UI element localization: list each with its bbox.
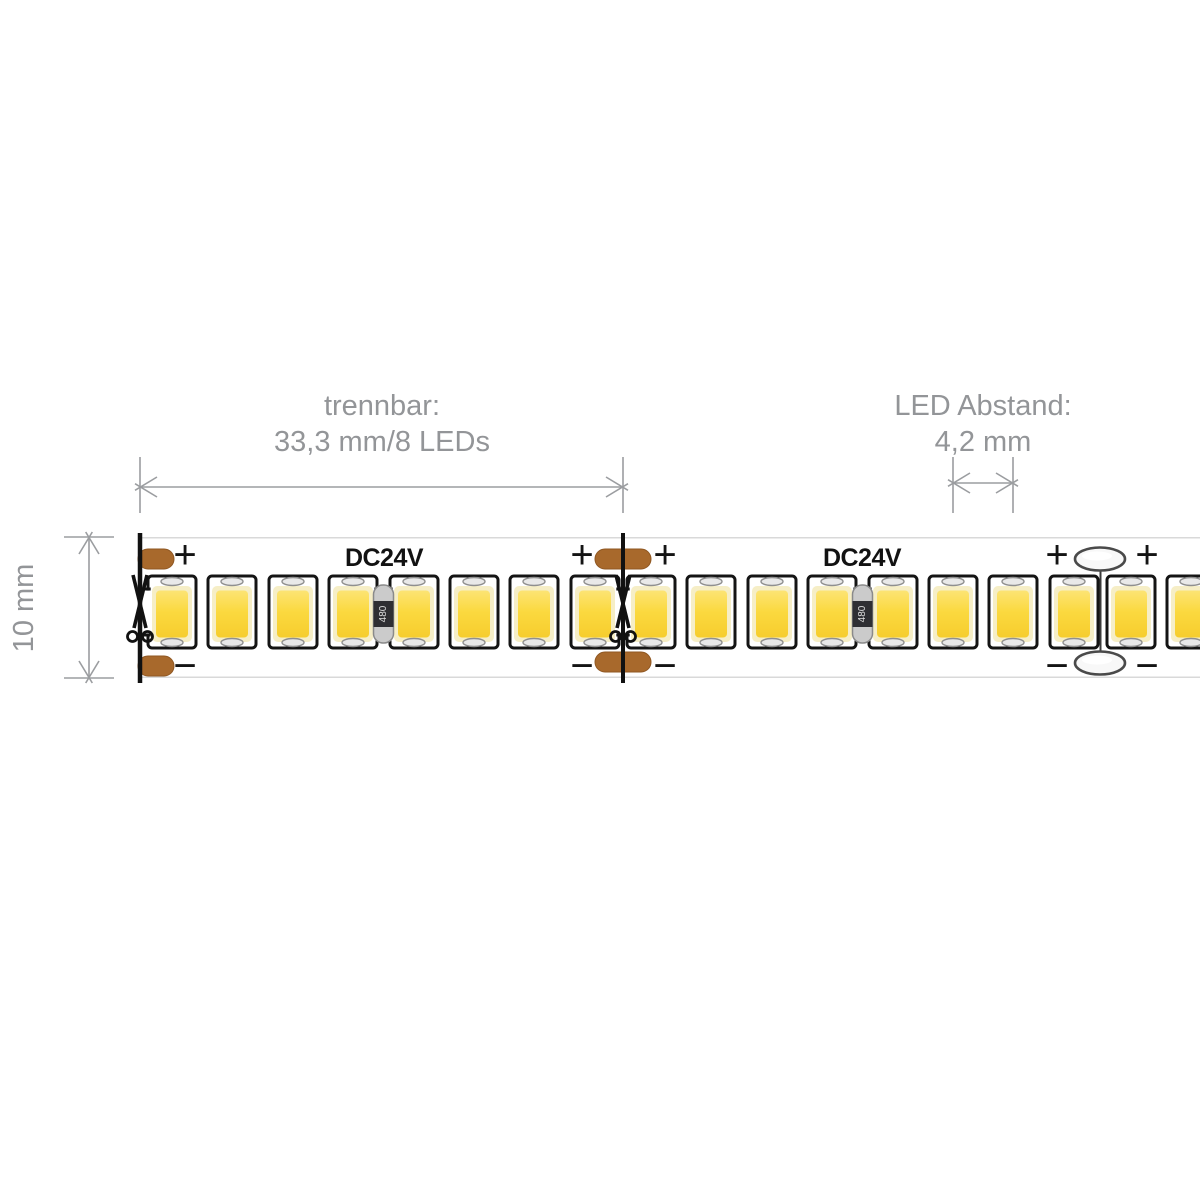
minus-polarity-mark: − — [1045, 644, 1068, 688]
led-electrode-bottom — [882, 639, 904, 647]
led-electrode-top — [523, 578, 545, 586]
led-electrode-bottom — [942, 639, 964, 647]
led-electrode-top — [1063, 578, 1085, 586]
led-electrode-bottom — [761, 639, 783, 647]
led-die — [156, 591, 188, 638]
led-electrode-top — [403, 578, 425, 586]
led-electrode-bottom — [1180, 639, 1200, 647]
led-die — [816, 591, 848, 638]
resistor-value-label: 480 — [378, 605, 389, 622]
led-die — [635, 591, 667, 638]
led-electrode-top — [463, 578, 485, 586]
separable-label-line1: trennbar: — [324, 390, 440, 422]
led-electrode-top — [221, 578, 243, 586]
led-electrode-top — [584, 578, 606, 586]
plus-polarity-mark: + — [1135, 533, 1158, 577]
minus-polarity-mark: − — [173, 644, 196, 688]
led-electrode-bottom — [342, 639, 364, 647]
led-die — [1115, 591, 1147, 638]
led-die — [398, 591, 430, 638]
led-die — [1058, 591, 1090, 638]
minus-polarity-mark: − — [653, 644, 676, 688]
led-spacing-label-line2: 4,2 mm — [935, 426, 1032, 458]
led-electrode-top — [1120, 578, 1142, 586]
led-die — [877, 591, 909, 638]
led-electrode-top — [1002, 578, 1024, 586]
led-electrode-top — [821, 578, 843, 586]
led-electrode-bottom — [221, 639, 243, 647]
voltage-label: DC24V — [345, 544, 424, 572]
led-die — [1175, 591, 1200, 638]
separable-label-line2: 33,3 mm/8 LEDs — [274, 426, 490, 458]
copper-pad — [138, 656, 174, 676]
voltage-label: DC24V — [823, 544, 902, 572]
led-die — [458, 591, 490, 638]
led-die — [518, 591, 550, 638]
led-electrode-top — [282, 578, 304, 586]
led-electrode-top — [1180, 578, 1200, 586]
led-electrode-top — [161, 578, 183, 586]
led-die — [216, 591, 248, 638]
plus-polarity-mark: + — [173, 533, 196, 577]
led-electrode-top — [942, 578, 964, 586]
led-die — [756, 591, 788, 638]
plus-polarity-mark: + — [653, 533, 676, 577]
solder-pad-highlight — [1082, 656, 1112, 665]
led-die — [997, 591, 1029, 638]
solder-pad-highlight — [1082, 552, 1112, 561]
plus-polarity-mark: + — [1045, 533, 1068, 577]
led-electrode-top — [700, 578, 722, 586]
led-die — [579, 591, 611, 638]
led-electrode-bottom — [1002, 639, 1024, 647]
copper-pad — [138, 549, 174, 569]
led-strip-diagram: 480480+−+−+−+−+− trennbar: 33,3 mm/8 LED… — [0, 0, 1200, 1200]
minus-polarity-mark: − — [570, 644, 593, 688]
led-electrode-bottom — [821, 639, 843, 647]
resistor-value-label: 480 — [857, 605, 868, 622]
plus-polarity-mark: + — [570, 533, 593, 577]
led-die — [277, 591, 309, 638]
led-electrode-top — [882, 578, 904, 586]
led-die — [695, 591, 727, 638]
strip-width-label: 10 mm — [8, 564, 40, 653]
led-electrode-bottom — [282, 639, 304, 647]
minus-polarity-mark: − — [1135, 644, 1158, 688]
led-electrode-bottom — [523, 639, 545, 647]
led-electrode-top — [640, 578, 662, 586]
led-die — [337, 591, 369, 638]
led-electrode-top — [342, 578, 364, 586]
led-electrode-top — [761, 578, 783, 586]
led-electrode-bottom — [463, 639, 485, 647]
led-spacing-label-line1: LED Abstand: — [894, 390, 1071, 422]
led-die — [937, 591, 969, 638]
led-electrode-bottom — [403, 639, 425, 647]
led-electrode-bottom — [700, 639, 722, 647]
